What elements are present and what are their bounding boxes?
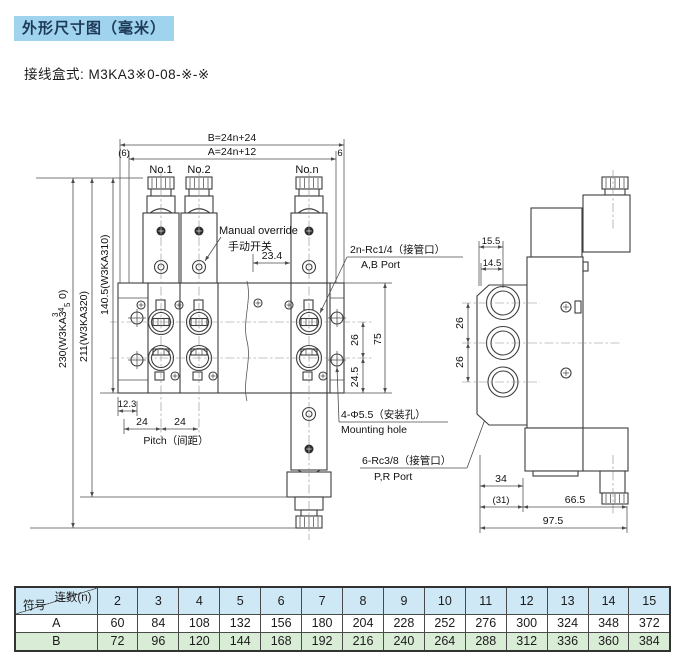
corner-label-symbol: 符号 — [23, 597, 46, 613]
row-b-label: B — [15, 632, 97, 651]
col-header: 3 — [138, 587, 179, 614]
col-header: 10 — [424, 587, 465, 614]
dimension-table: 连数(n) 符号 2 3 4 5 6 7 8 9 10 11 12 13 14 … — [14, 586, 671, 652]
col-header: 12 — [506, 587, 547, 614]
cell-b: 240 — [383, 632, 424, 651]
cell-b: 288 — [465, 632, 506, 651]
station-n-label: No.n — [295, 164, 318, 176]
cell-a: 180 — [302, 614, 343, 632]
col-header: 2 — [97, 587, 138, 614]
station-2-label: No.2 — [187, 164, 210, 176]
dim-31: (31) — [493, 495, 510, 506]
dim-24-first: 24 — [136, 416, 148, 428]
pr-port-spec: 6-Rc3/8（接管口） — [362, 454, 451, 467]
dim-34: 34 — [495, 473, 507, 485]
col-header: 11 — [465, 587, 506, 614]
dim-97-5: 97.5 — [543, 515, 564, 527]
col-header: 6 — [261, 587, 302, 614]
table-row-a: A 60 84 108 132 156 180 204 228 252 276 … — [15, 614, 670, 632]
ab-port-name: A,B Port — [361, 259, 400, 271]
col-header: 5 — [220, 587, 261, 614]
cell-a: 276 — [465, 614, 506, 632]
dim-15-5: 15.5 — [482, 236, 501, 247]
cell-b: 72 — [97, 632, 138, 651]
cell-b: 168 — [261, 632, 302, 651]
table-row-b: B 72 96 120 144 168 192 216 240 264 288 … — [15, 632, 670, 651]
table-header-row: 连数(n) 符号 2 3 4 5 6 7 8 9 10 11 12 13 14 … — [15, 587, 670, 614]
front-view: B=24n+24 A=24n+12 (6) 6 No.1 No.2 No.n M… — [30, 132, 494, 540]
cell-a: 300 — [506, 614, 547, 632]
manifold-base — [118, 281, 346, 401]
cell-b: 216 — [343, 632, 384, 651]
dim-24-5: 24.5 — [349, 367, 361, 388]
col-header: 15 — [629, 587, 670, 614]
dim-end-left: (6) — [118, 148, 130, 159]
cell-b: 192 — [302, 632, 343, 651]
cell-b: 336 — [547, 632, 588, 651]
side-view: 15.5 14.5 26 26 34 (31) 66.5 97.5 — [454, 170, 630, 533]
height-140-label: 140.5(W3KA310) — [99, 234, 111, 315]
svg-text:0): 0) — [57, 290, 69, 299]
pitch-label: Pitch（间距） — [143, 434, 208, 447]
datasheet-page: 外形尺寸图（毫米） 接线盒式: M3KA3※0-08-※-※ — [0, 0, 680, 669]
row-a-label: A — [15, 614, 97, 632]
svg-text:5: 5 — [63, 302, 72, 307]
dim-26-front: 26 — [349, 334, 361, 346]
height-211-label: 211(W3KA320) — [78, 291, 90, 362]
svg-text:230(W3KA3: 230(W3KA3 — [57, 311, 69, 368]
cell-a: 324 — [547, 614, 588, 632]
col-header: 8 — [343, 587, 384, 614]
col-header: 14 — [588, 587, 629, 614]
dim-b-formula: B=24n+24 — [208, 132, 257, 144]
cell-a: 204 — [343, 614, 384, 632]
cell-b: 144 — [220, 632, 261, 651]
dim-66-5: 66.5 — [565, 494, 586, 506]
mounting-spec: 4-Φ5.5（安装孔） — [341, 408, 426, 421]
pr-port-name: P,R Port — [374, 471, 412, 483]
dim-12-3: 12.3 — [118, 399, 137, 410]
cell-a: 108 — [179, 614, 220, 632]
corner-label-stations: 连数(n) — [54, 589, 91, 605]
cell-a: 348 — [588, 614, 629, 632]
cell-a: 84 — [138, 614, 179, 632]
dim-end-right: 6 — [337, 148, 342, 159]
station-1-label: No.1 — [149, 164, 172, 176]
cell-b: 384 — [629, 632, 670, 651]
dim-26-upper: 26 — [454, 317, 466, 329]
cell-b: 264 — [424, 632, 465, 651]
cell-a: 156 — [261, 614, 302, 632]
cell-a: 60 — [97, 614, 138, 632]
cell-b: 96 — [138, 632, 179, 651]
cell-a: 132 — [220, 614, 261, 632]
height-230-label: 230(W3KA3 3 4 5 0) — [51, 290, 72, 368]
col-header: 9 — [383, 587, 424, 614]
table-corner-cell: 连数(n) 符号 — [15, 587, 97, 614]
cell-a: 228 — [383, 614, 424, 632]
col-header: 7 — [302, 587, 343, 614]
dim-a-formula: A=24n+12 — [208, 146, 257, 158]
cell-a: 252 — [424, 614, 465, 632]
ab-port-spec: 2n-Rc1/4（接管口） — [350, 243, 445, 256]
cell-b: 312 — [506, 632, 547, 651]
cell-b: 360 — [588, 632, 629, 651]
dim-24-second: 24 — [174, 416, 186, 428]
mounting-name: Mounting hole — [341, 424, 407, 436]
cell-a: 372 — [629, 614, 670, 632]
dim-75: 75 — [372, 333, 384, 345]
col-header: 13 — [547, 587, 588, 614]
dim-23-4: 23.4 — [262, 250, 283, 262]
col-header: 4 — [179, 587, 220, 614]
manual-override-en: Manual override — [219, 225, 298, 237]
dimension-drawing: B=24n+24 A=24n+12 (6) 6 No.1 No.2 No.n M… — [0, 0, 680, 578]
cell-b: 120 — [179, 632, 220, 651]
dim-14-5: 14.5 — [483, 258, 502, 269]
dim-26-lower: 26 — [454, 356, 466, 368]
